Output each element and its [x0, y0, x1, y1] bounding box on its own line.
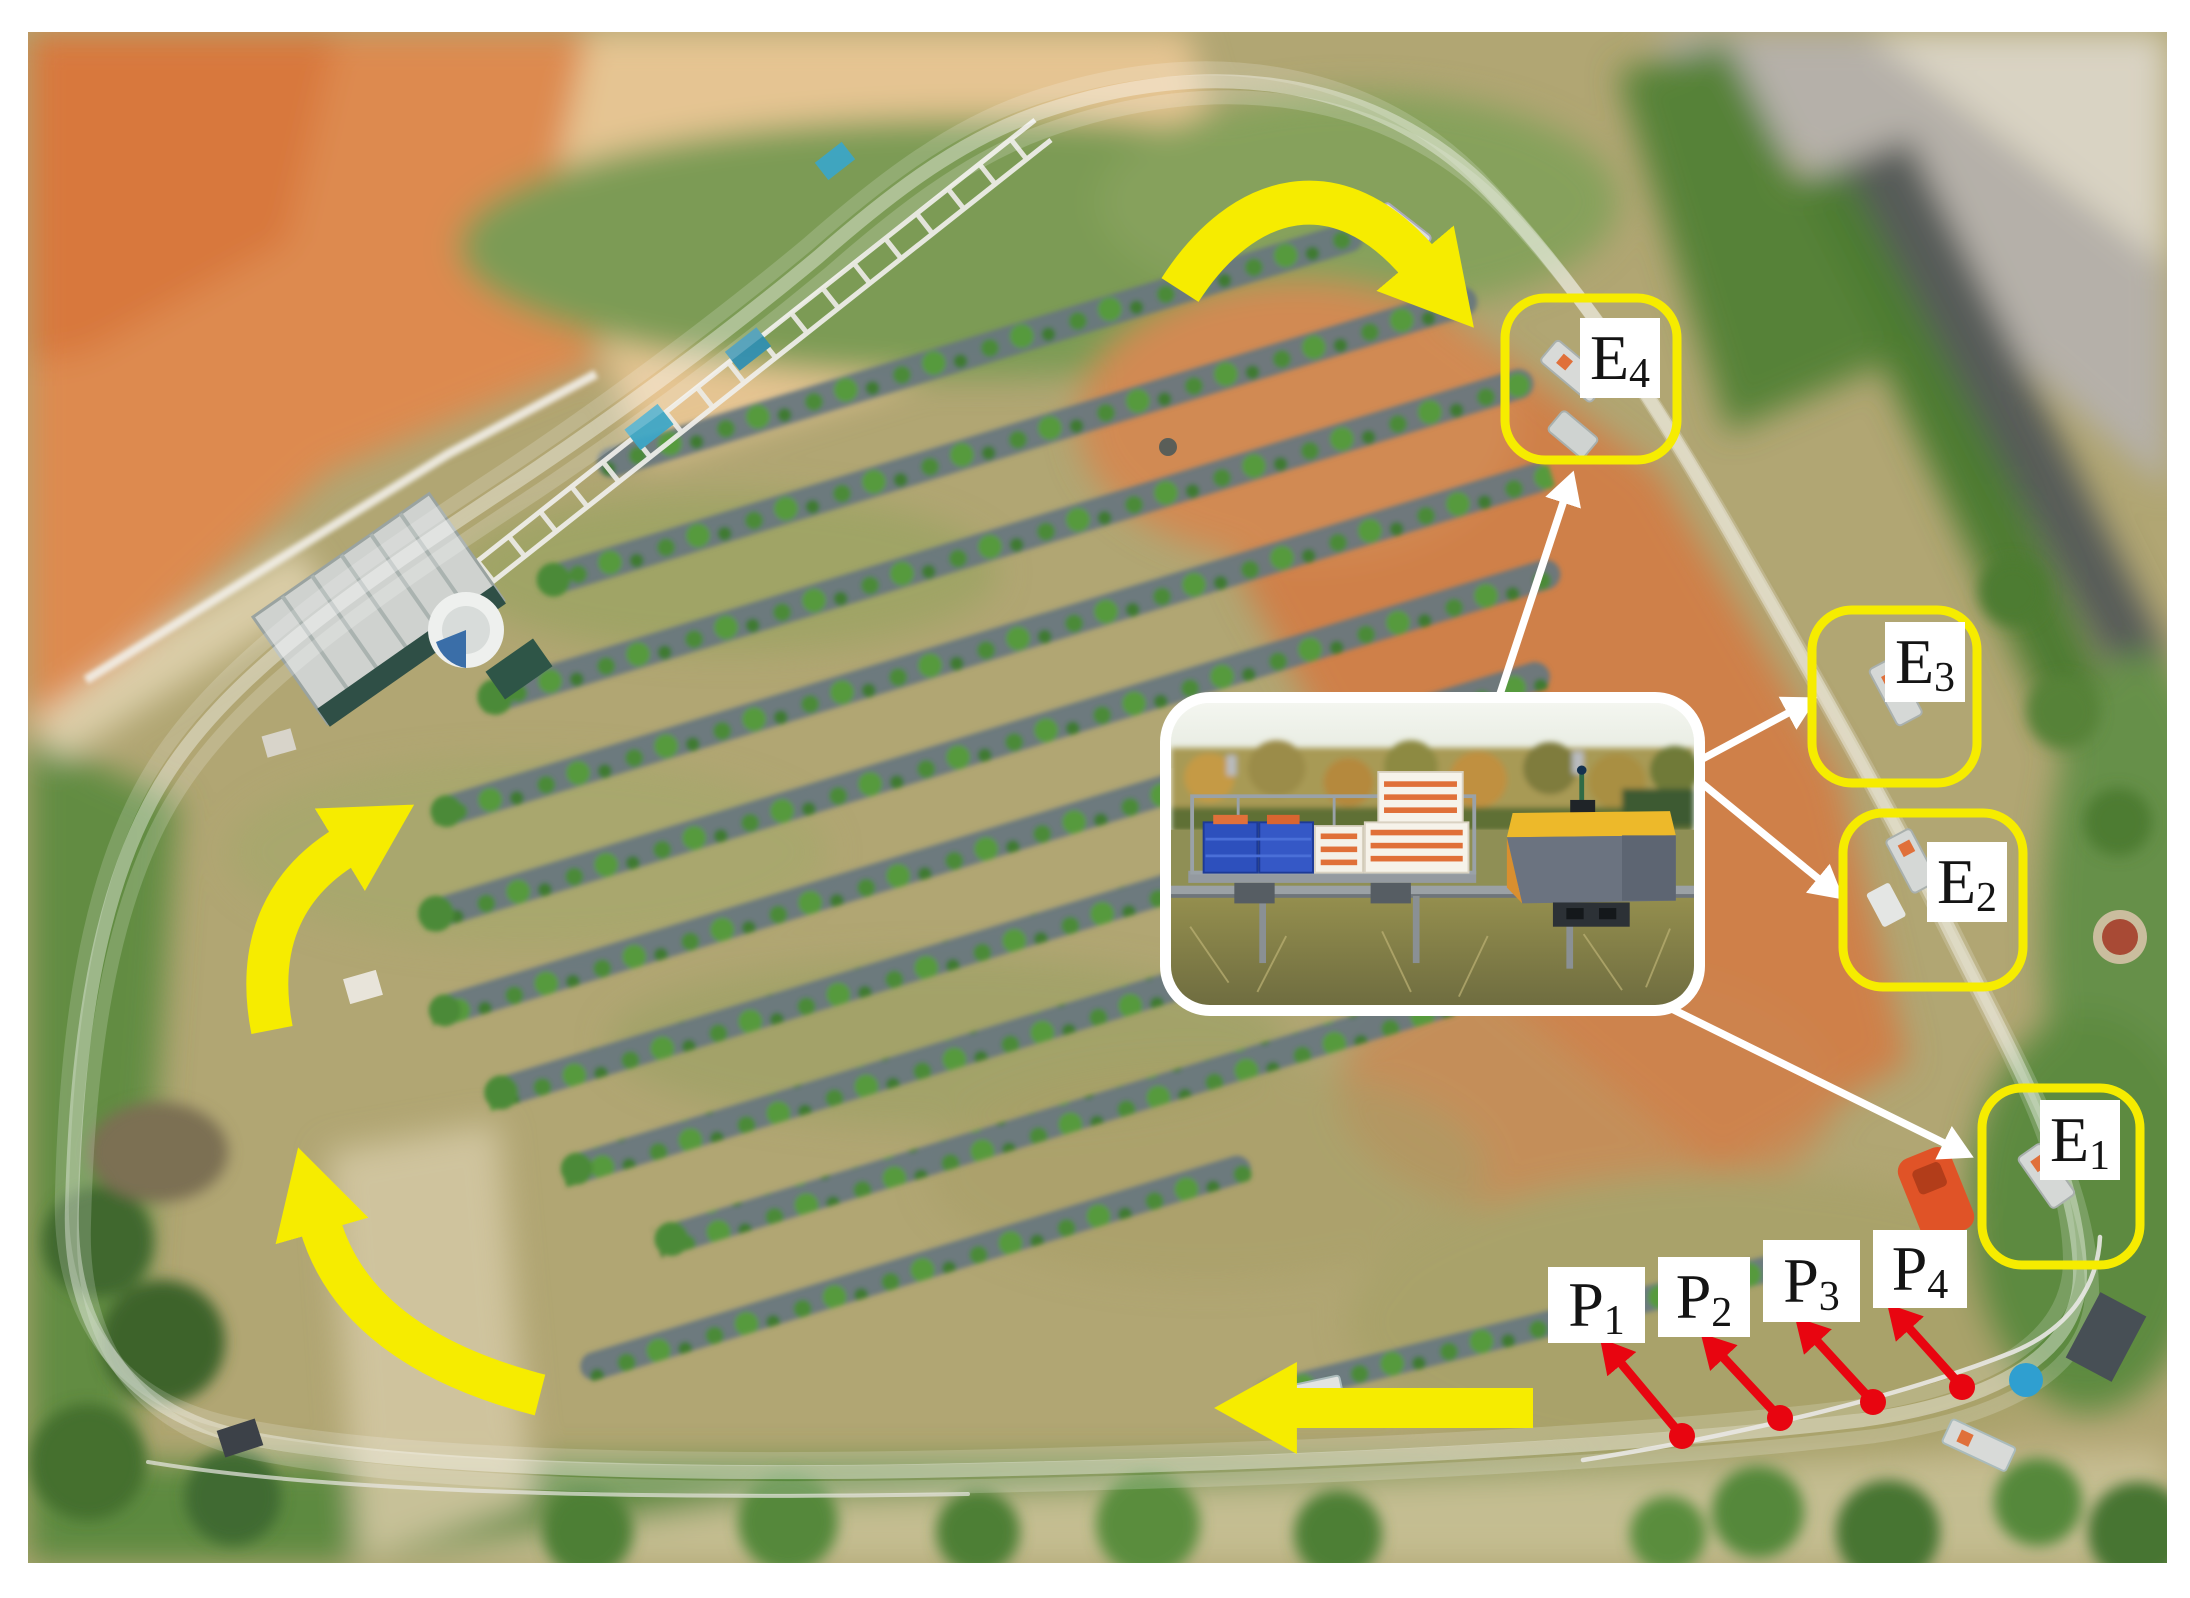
- station-label-e2-base: E: [1937, 850, 1976, 914]
- red-dot-p2: [1767, 1405, 1793, 1431]
- station-label-e4-sub: 4: [1629, 353, 1650, 395]
- station-label-e1-sub: 1: [2089, 1135, 2110, 1177]
- inset-photo-monorail-transporter: [1160, 692, 1705, 1016]
- point-label-p1-sub: 1: [1604, 1300, 1625, 1342]
- point-label-p2-sub: 2: [1711, 1292, 1732, 1334]
- station-label-e4-base: E: [1590, 326, 1629, 390]
- point-label-p2-base: P: [1676, 1265, 1712, 1329]
- red-dot-p1: [1669, 1423, 1695, 1449]
- point-label-p2: P2: [1658, 1257, 1750, 1337]
- point-label-p3: P3: [1763, 1240, 1860, 1322]
- station-label-e2: E2: [1927, 842, 2007, 922]
- station-label-e1: E1: [2040, 1100, 2120, 1180]
- inset-blue-crates: [1204, 815, 1313, 873]
- red-dot-p4: [1949, 1374, 1975, 1400]
- point-label-p3-sub: 3: [1819, 1276, 1840, 1318]
- point-label-p4-base: P: [1892, 1237, 1928, 1301]
- manhole: [2102, 919, 2138, 955]
- red-dot-p3: [1860, 1389, 1886, 1415]
- point-label-p1-base: P: [1568, 1273, 1604, 1337]
- figure-aerial-orchard-monorail: E4 E3 E2 E1 P1 P2 P3 P4: [0, 0, 2190, 1598]
- station-label-e3: E3: [1885, 622, 1965, 702]
- station-label-e4: E4: [1580, 318, 1660, 398]
- point-label-p3-base: P: [1783, 1249, 1819, 1313]
- point-label-p4: P4: [1873, 1230, 1967, 1308]
- station-label-e2-sub: 2: [1976, 877, 1997, 919]
- station-label-e3-base: E: [1895, 630, 1934, 694]
- point-label-p1: P1: [1548, 1267, 1645, 1343]
- station-label-e1-base: E: [2050, 1108, 2089, 1172]
- aerial-photo: E4 E3 E2 E1 P1 P2 P3 P4: [28, 32, 2167, 1563]
- blue-barrel: [2009, 1363, 2043, 1397]
- point-label-p4-sub: 4: [1927, 1264, 1948, 1306]
- station-label-e3-sub: 3: [1934, 657, 1955, 699]
- aerial-scene: [28, 32, 2167, 1563]
- inset-scene: [1171, 703, 1694, 1005]
